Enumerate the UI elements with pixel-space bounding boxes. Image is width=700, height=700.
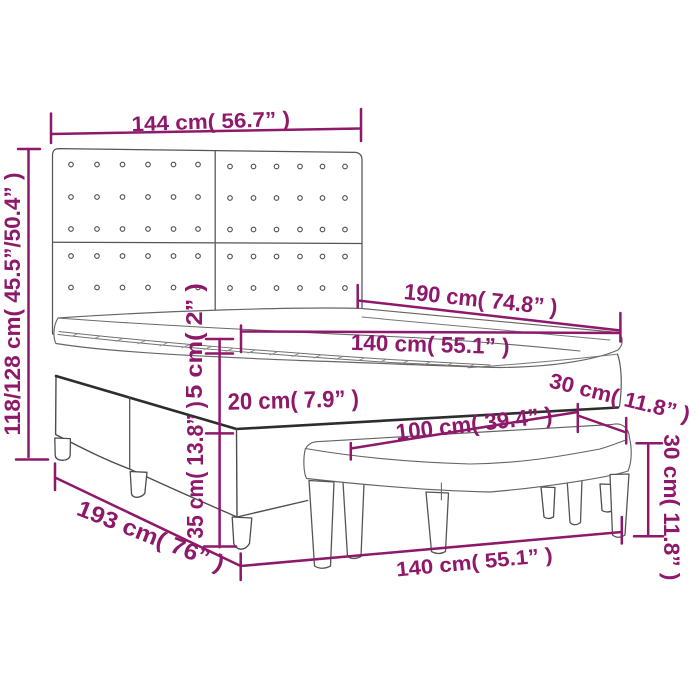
svg-text:118/128 cm( 45.5”/50.4” ): 118/128 cm( 45.5”/50.4” ) bbox=[0, 173, 25, 436]
svg-text:140 cm( 55.1” ): 140 cm( 55.1” ) bbox=[350, 330, 509, 359]
svg-text:30 cm( 11.8” ): 30 cm( 11.8” ) bbox=[659, 434, 684, 580]
svg-text:20 cm( 7.9” ): 20 cm( 7.9” ) bbox=[227, 385, 359, 415]
svg-text:35 cm( 13.8” ): 35 cm( 13.8” ) bbox=[182, 401, 208, 538]
svg-text:5 cm( 2” ): 5 cm( 2” ) bbox=[182, 283, 208, 399]
